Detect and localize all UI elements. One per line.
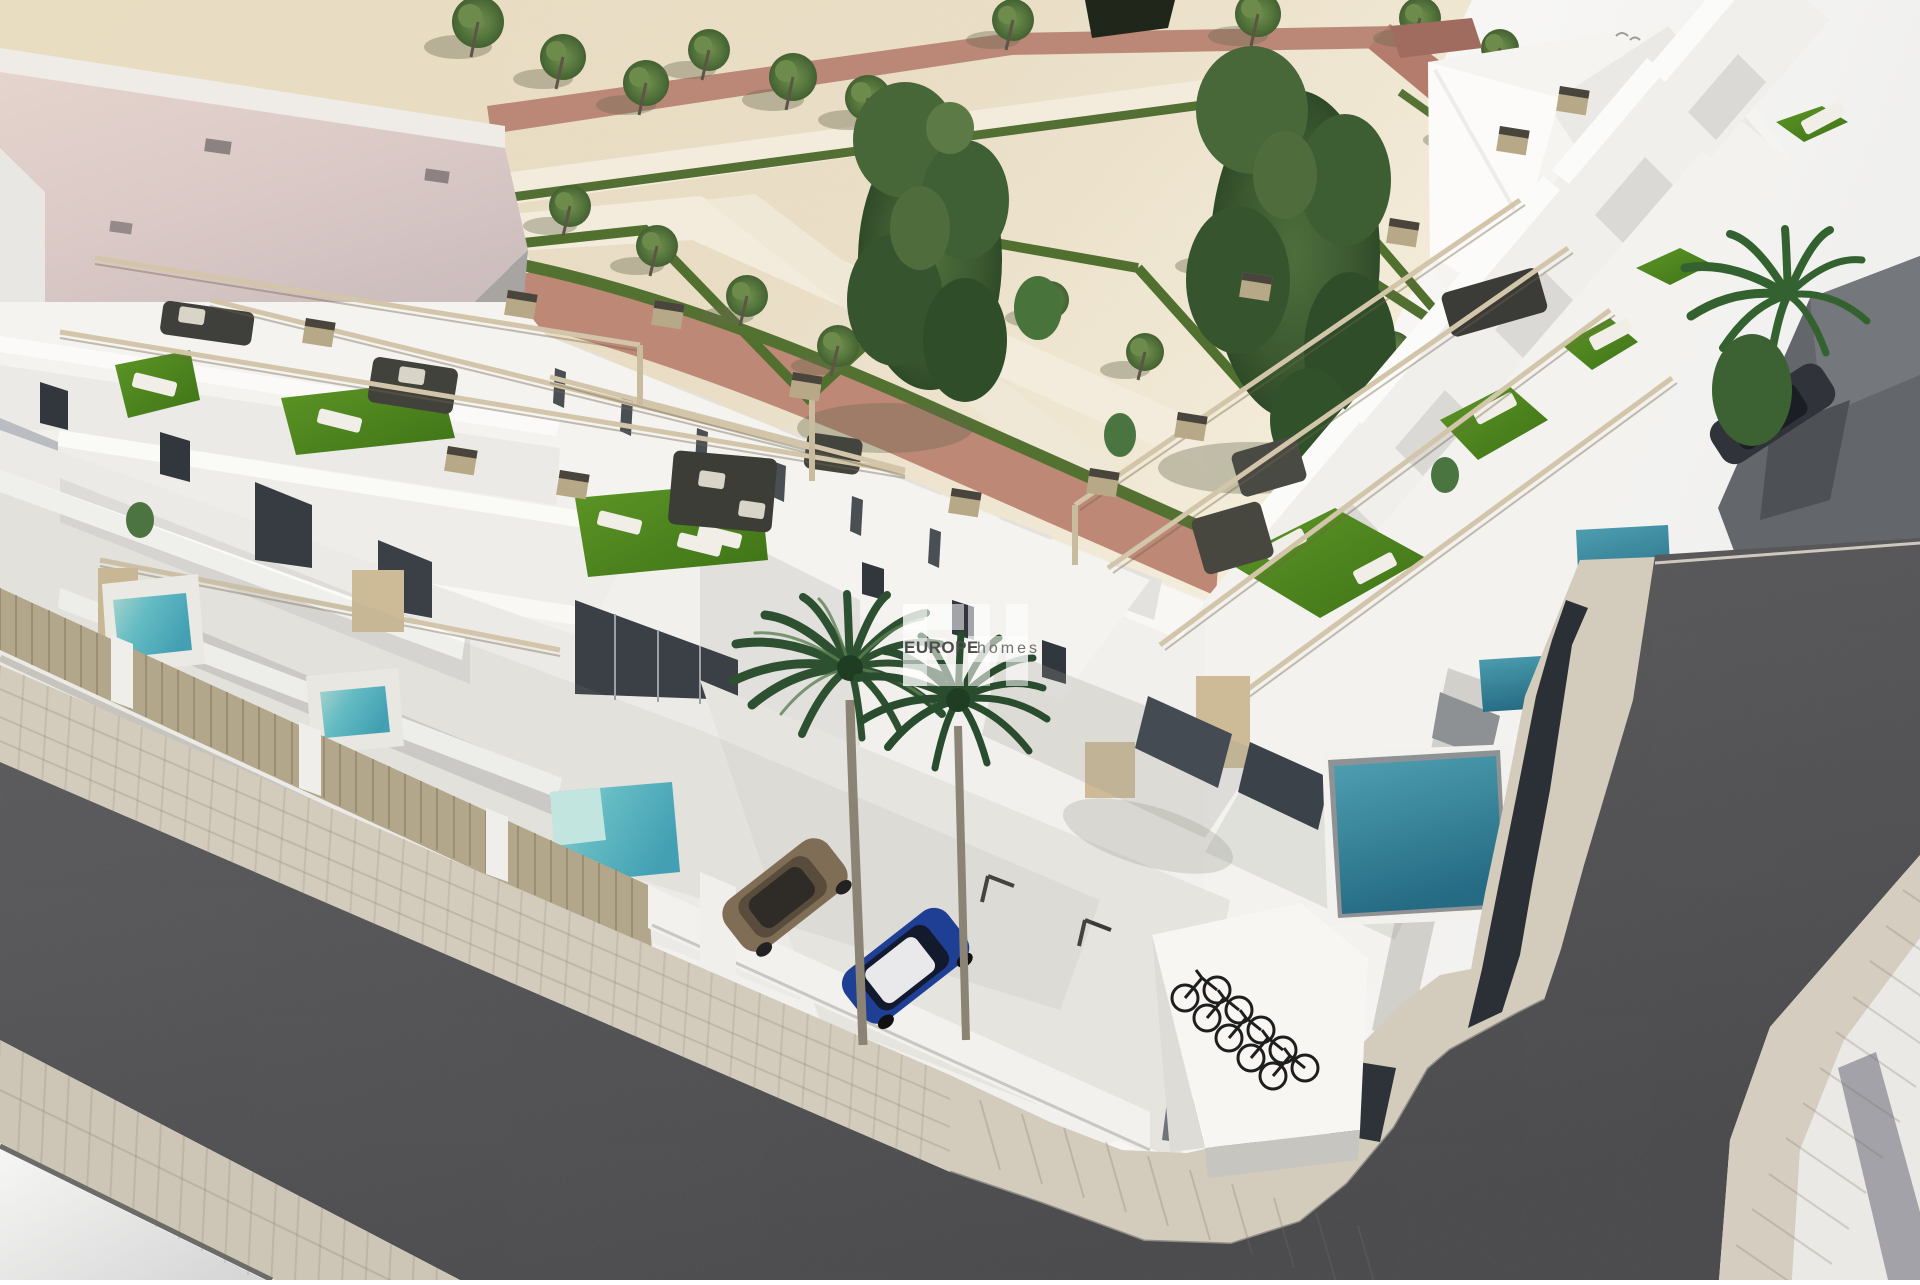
svg-text:homes: homes bbox=[977, 640, 1040, 657]
svg-text:EUROPE: EUROPE bbox=[904, 638, 979, 657]
